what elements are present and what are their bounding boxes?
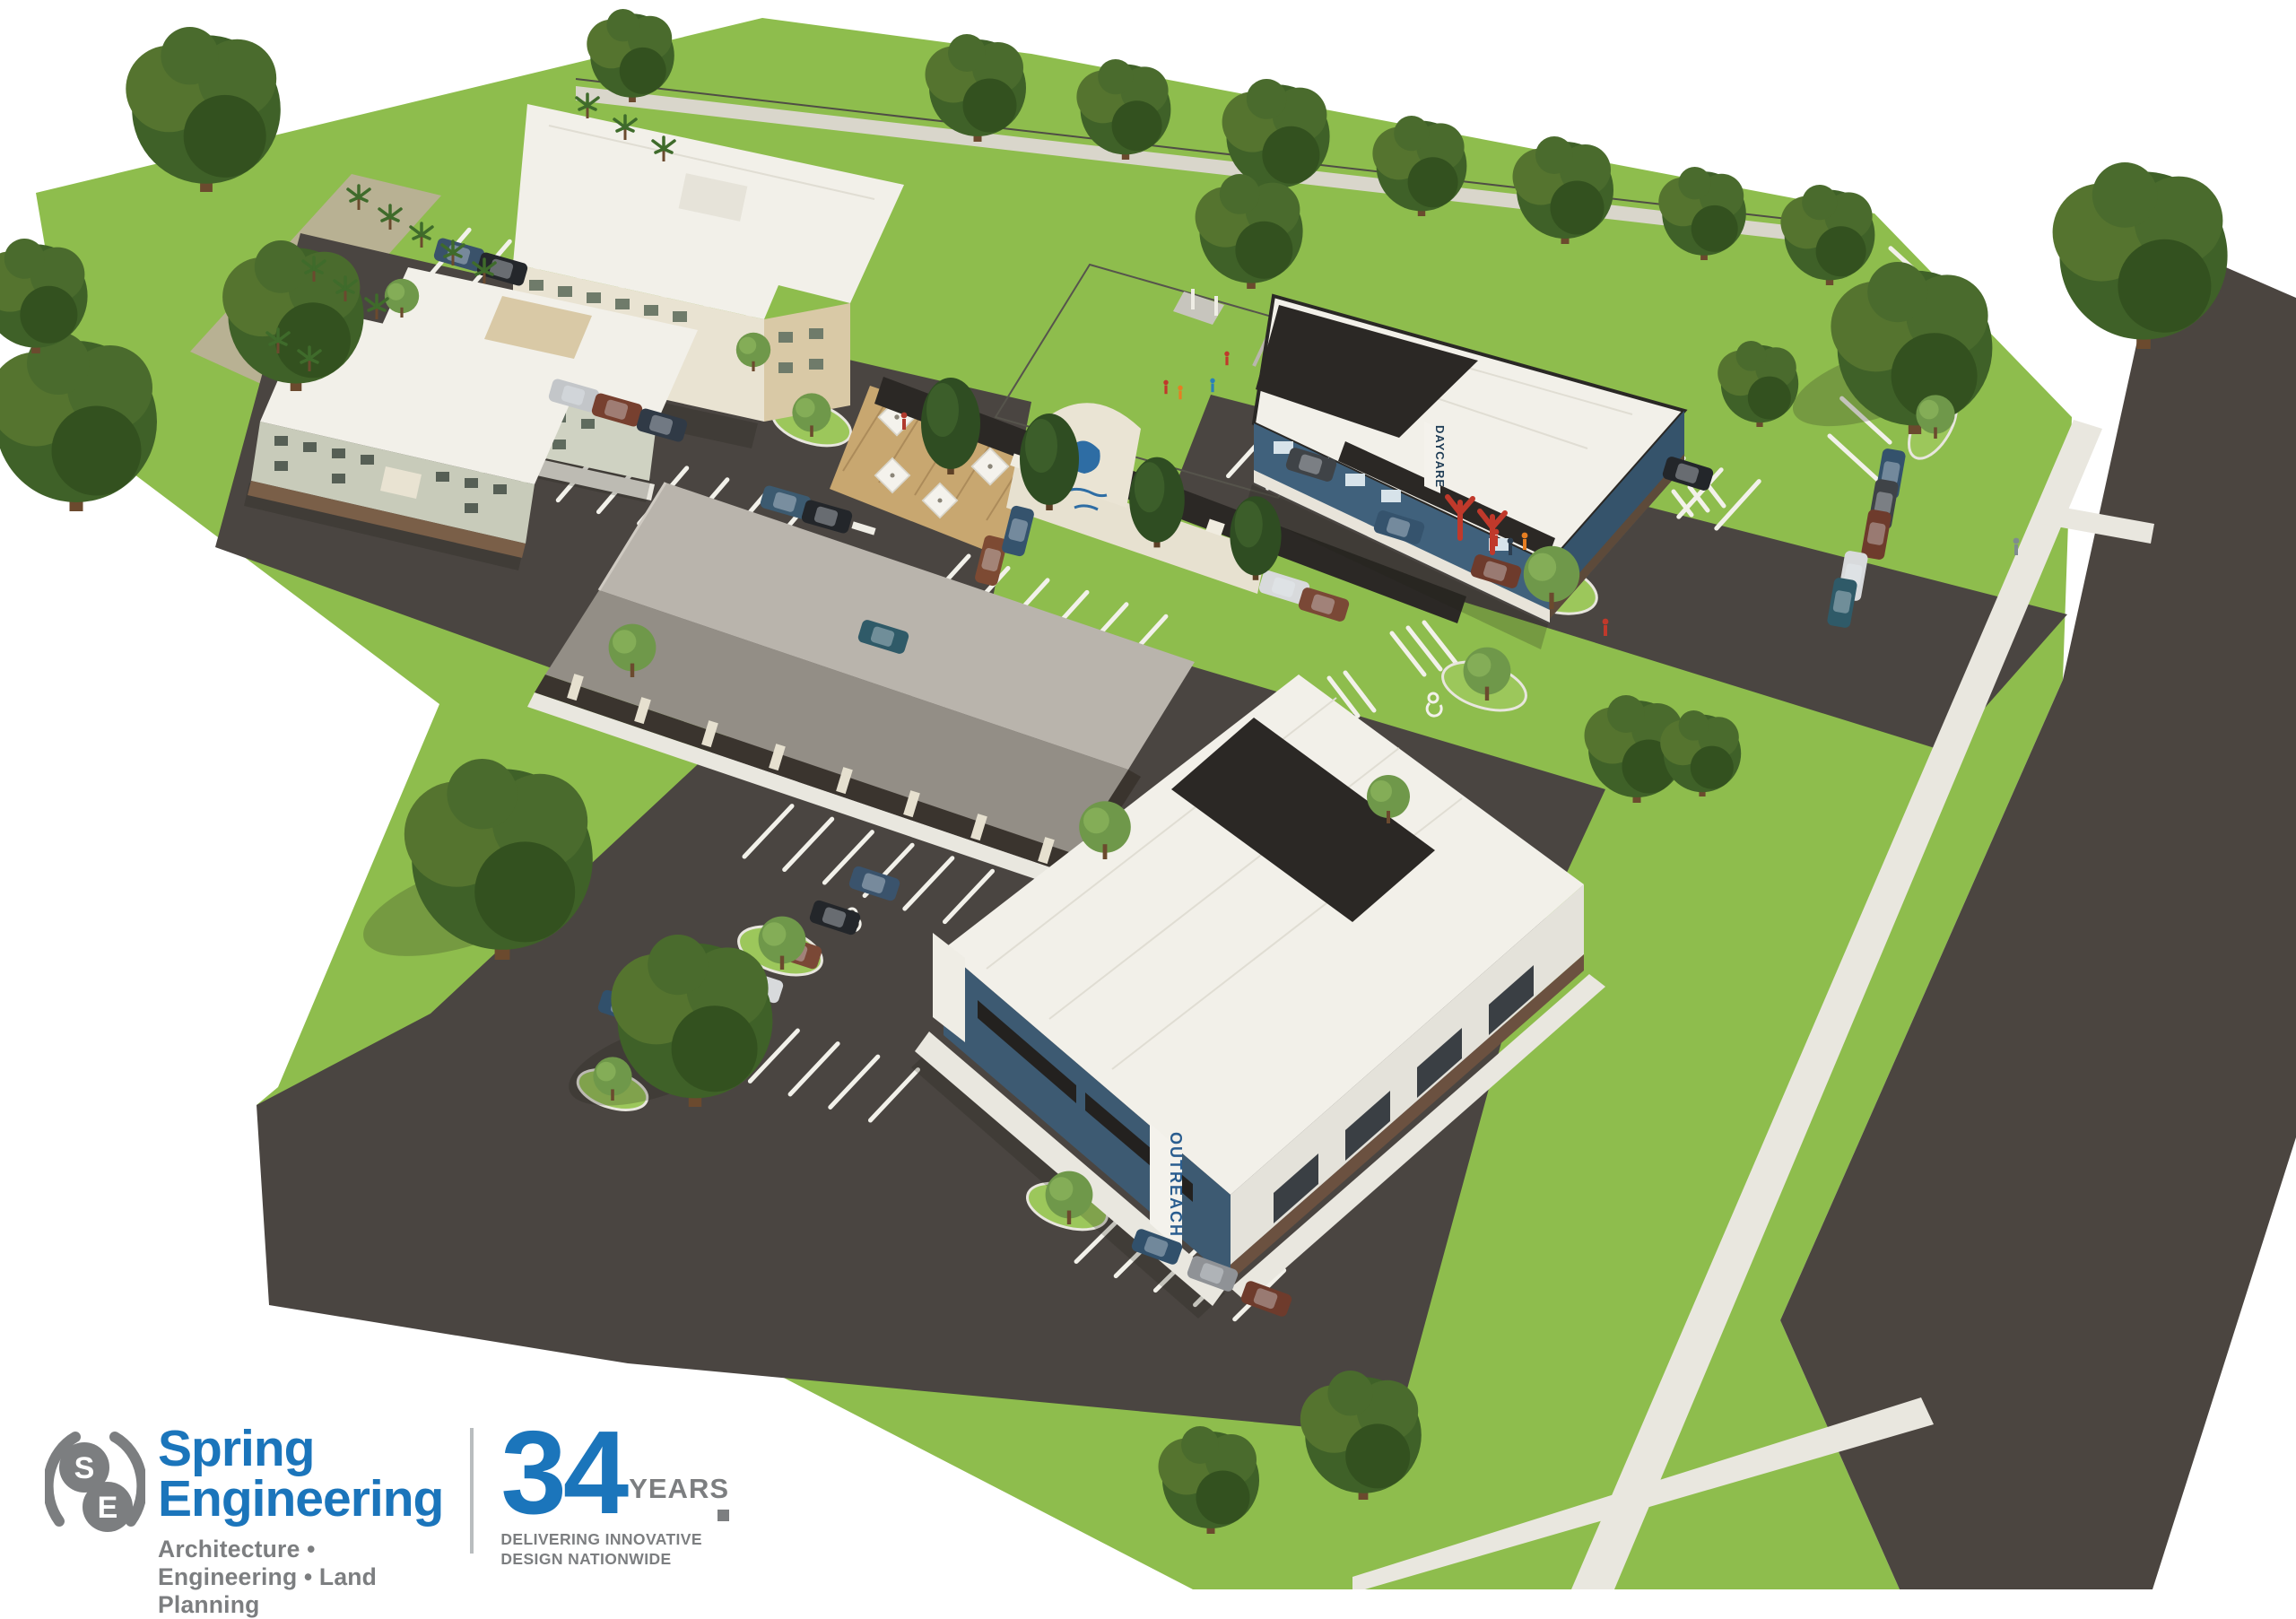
anniversary-subline-2: DESIGN NATIONWIDE xyxy=(500,1550,729,1570)
anniversary-badge: 34 YEARS DELIVERING INNOVATIVE DESIGN NA… xyxy=(500,1424,729,1570)
company-name-line2: Engineering xyxy=(158,1475,443,1525)
outreach-sign: OUTREACH xyxy=(1167,1132,1185,1238)
daycare-sign: DAYCARE xyxy=(1433,425,1447,488)
monogram-e: E xyxy=(98,1491,118,1525)
aerial-site-rendering: DAYCARE OUTREACH xyxy=(0,0,2296,1589)
se-monogram-icon: S E xyxy=(45,1424,145,1559)
logo-divider xyxy=(470,1428,474,1554)
rendering-page: { "page": { "width": 2560, "height": 177… xyxy=(0,0,2296,1589)
anniversary-square-mark xyxy=(717,1510,729,1521)
anniversary-label: YEARS xyxy=(629,1475,729,1502)
company-tagline: Architecture • Engineering • Land Planni… xyxy=(158,1536,443,1619)
anniversary-subline-1: DELIVERING INNOVATIVE xyxy=(500,1530,729,1550)
spring-engineering-logo: S E Spring Engineering Architecture • En… xyxy=(45,1424,726,1568)
monogram-s: S xyxy=(74,1451,95,1485)
company-name-line1: Spring xyxy=(158,1424,443,1475)
anniversary-number: 34 xyxy=(500,1424,625,1521)
